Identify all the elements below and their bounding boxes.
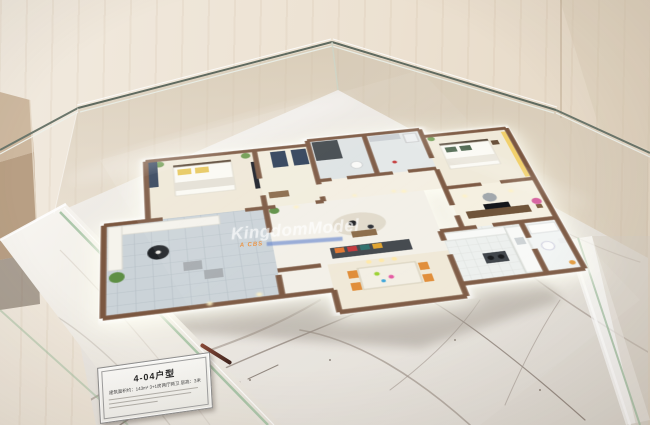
plaque-frame: 4-04户型 建筑面积约：143m² 3+1房两厅两卫 层高：3米: [101, 357, 208, 420]
photo-scene: KingdomModel A CBS 4-04户型 建筑面积约：143m² 3+…: [0, 0, 650, 425]
